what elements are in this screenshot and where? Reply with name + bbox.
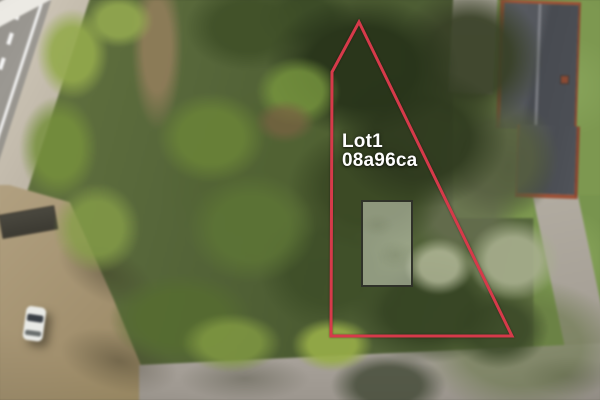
lot-label: Lot1 08a96ca: [342, 132, 417, 170]
lot-boundary-overlay: [0, 0, 600, 400]
building-footprint-overlay: [361, 200, 413, 287]
lot-code: 08a96ca: [342, 151, 417, 170]
lot-boundary-polygon: [331, 22, 512, 336]
lot-name: Lot1: [342, 132, 417, 151]
aerial-photo: Lot1 08a96ca: [0, 0, 600, 400]
